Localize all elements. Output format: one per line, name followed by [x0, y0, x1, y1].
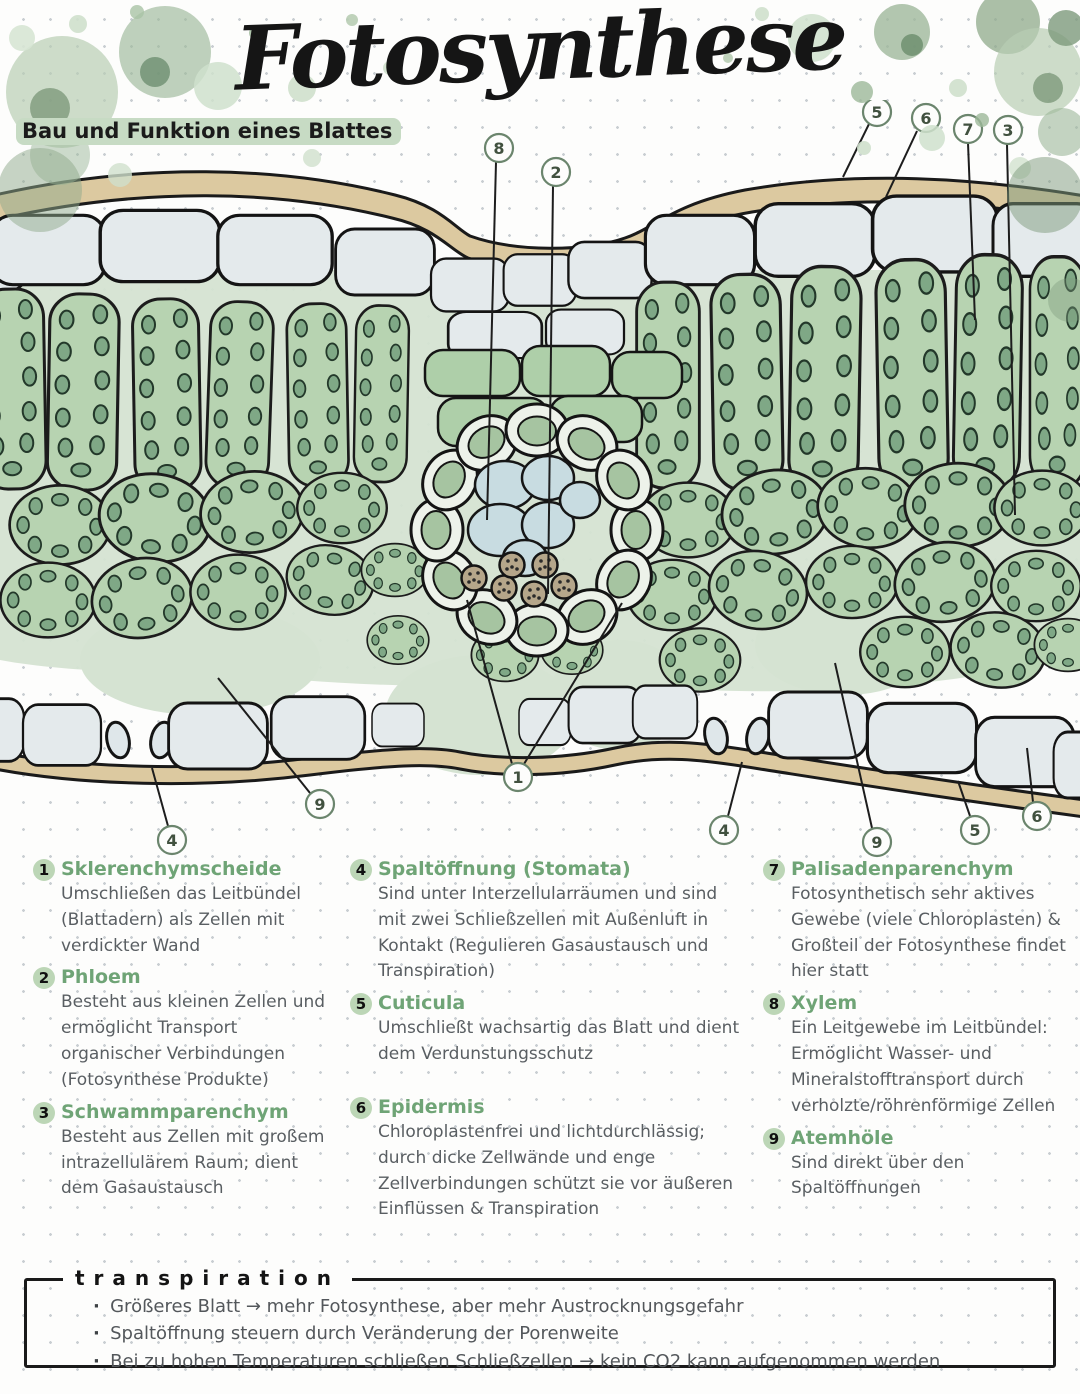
leaf-cross-section-diagram: 8 2 5 6 7 3 4	[0, 100, 1080, 860]
legend-column-2: 4 Spaltöffnung (Stomata) Sind unter Inte…	[350, 858, 750, 1230]
legend-item-phloem: 2 Phloem Besteht aus kleinen Zellen und …	[33, 966, 333, 1093]
svg-text:7: 7	[962, 120, 973, 139]
page-subtitle: Bau und Funktion eines Blattes	[16, 118, 401, 145]
legend-body-6: Chloroplastenfrei und lichtdurchlässig; …	[378, 1120, 750, 1223]
legend-body-7: Fotosynthetisch sehr aktives Gewebe (vie…	[791, 882, 1068, 985]
legend-title-8: Xylem	[791, 992, 1068, 1014]
svg-text:5: 5	[969, 821, 980, 840]
legend-number-6: 6	[350, 1097, 372, 1119]
transpiration-bullet-1: Größeres Blatt → mehr Fotosynthese, aber…	[93, 1293, 1043, 1320]
legend-number-8: 8	[763, 993, 785, 1015]
legend-item-schwammparenchym: 3 Schwammparenchym Besteht aus Zellen mi…	[33, 1101, 333, 1202]
legend-title-5: Cuticula	[378, 992, 750, 1014]
callout-4-right: 4	[710, 762, 742, 844]
legend-item-cuticula: 5 Cuticula Umschließt wachsartig das Bla…	[350, 992, 750, 1068]
legend-item-epidermis: 6 Epidermis Chloroplastenfrei und lichtd…	[350, 1096, 750, 1223]
legend-body-3: Besteht aus Zellen mit großem intrazellu…	[61, 1125, 333, 1202]
legend-number-3: 3	[33, 1102, 55, 1124]
legend-item-palisadenparenchym: 7 Palisadenparenchym Fotosynthetisch seh…	[763, 858, 1068, 985]
legend-title-6: Epidermis	[378, 1096, 750, 1118]
svg-text:8: 8	[493, 139, 504, 158]
svg-text:6: 6	[920, 109, 931, 128]
legend-item-sklerenchymscheide: 1 Sklerenchymscheide Umschließen das Lei…	[33, 858, 333, 959]
legend-title-2: Phloem	[61, 966, 333, 988]
transpiration-bullet-2: Spaltöffnung steuern durch Veränderung d…	[93, 1320, 1043, 1347]
svg-text:4: 4	[166, 831, 177, 850]
svg-text:9: 9	[314, 795, 325, 814]
legend-body-9: Sind direkt über den Spaltöffnungen	[791, 1151, 1068, 1203]
legend-body-5: Umschließt wachsartig das Blatt und dien…	[378, 1016, 750, 1068]
svg-text:4: 4	[718, 821, 729, 840]
study-note-page: { "page": { "title": "Fotosynthese", "su…	[0, 0, 1080, 1394]
callout-5-top: 5	[843, 100, 891, 177]
legend-title-3: Schwammparenchym	[61, 1101, 333, 1123]
svg-text:2: 2	[550, 163, 561, 182]
legend-column-3: 7 Palisadenparenchym Fotosynthetisch seh…	[763, 858, 1068, 1209]
legend-body-1: Umschließen das Leitbündel (Blattadern) …	[61, 882, 333, 959]
legend-title-4: Spaltöffnung (Stomata)	[378, 858, 750, 880]
legend-column-1: 1 Sklerenchymscheide Umschließen das Lei…	[33, 858, 333, 1209]
transpiration-box: transpiration Größeres Blatt → mehr Foto…	[24, 1278, 1056, 1368]
stoma-left	[103, 720, 176, 760]
legend-title-1: Sklerenchymscheide	[61, 858, 333, 880]
legend-body-2: Besteht aus kleinen Zellen und ermöglich…	[61, 990, 333, 1093]
legend-body-8: Ein Leitgewebe im Leitbündel: Ermöglicht…	[791, 1016, 1068, 1119]
svg-text:1: 1	[512, 768, 523, 787]
svg-text:3: 3	[1002, 121, 1013, 140]
svg-text:9: 9	[871, 833, 882, 852]
svg-text:5: 5	[871, 103, 882, 122]
legend-number-7: 7	[763, 859, 785, 881]
legend-number-4: 4	[350, 859, 372, 881]
legend-number-2: 2	[33, 967, 55, 989]
legend-number-5: 5	[350, 993, 372, 1015]
legend-title-7: Palisadenparenchym	[791, 858, 1068, 880]
transpiration-notes: Größeres Blatt → mehr Fotosynthese, aber…	[27, 1281, 1053, 1375]
legend-item-xylem: 8 Xylem Ein Leitgewebe im Leitbündel: Er…	[763, 992, 1068, 1119]
transpiration-bullet-3: Bei zu hohen Temperaturen schließen Schl…	[93, 1348, 1043, 1375]
legend-title-9: Atemhöle	[791, 1127, 1068, 1149]
legend-item-atemhoele: 9 Atemhöle Sind direkt über den Spaltöff…	[763, 1127, 1068, 1203]
svg-text:6: 6	[1031, 807, 1042, 826]
legend-body-4: Sind unter Interzellularräumen und sind …	[378, 882, 750, 985]
transpiration-box-title: transpiration	[63, 1266, 352, 1290]
legend-number-1: 1	[33, 859, 55, 881]
legend-item-spaltoeffnung: 4 Spaltöffnung (Stomata) Sind unter Inte…	[350, 858, 750, 985]
legend-number-9: 9	[763, 1128, 785, 1150]
